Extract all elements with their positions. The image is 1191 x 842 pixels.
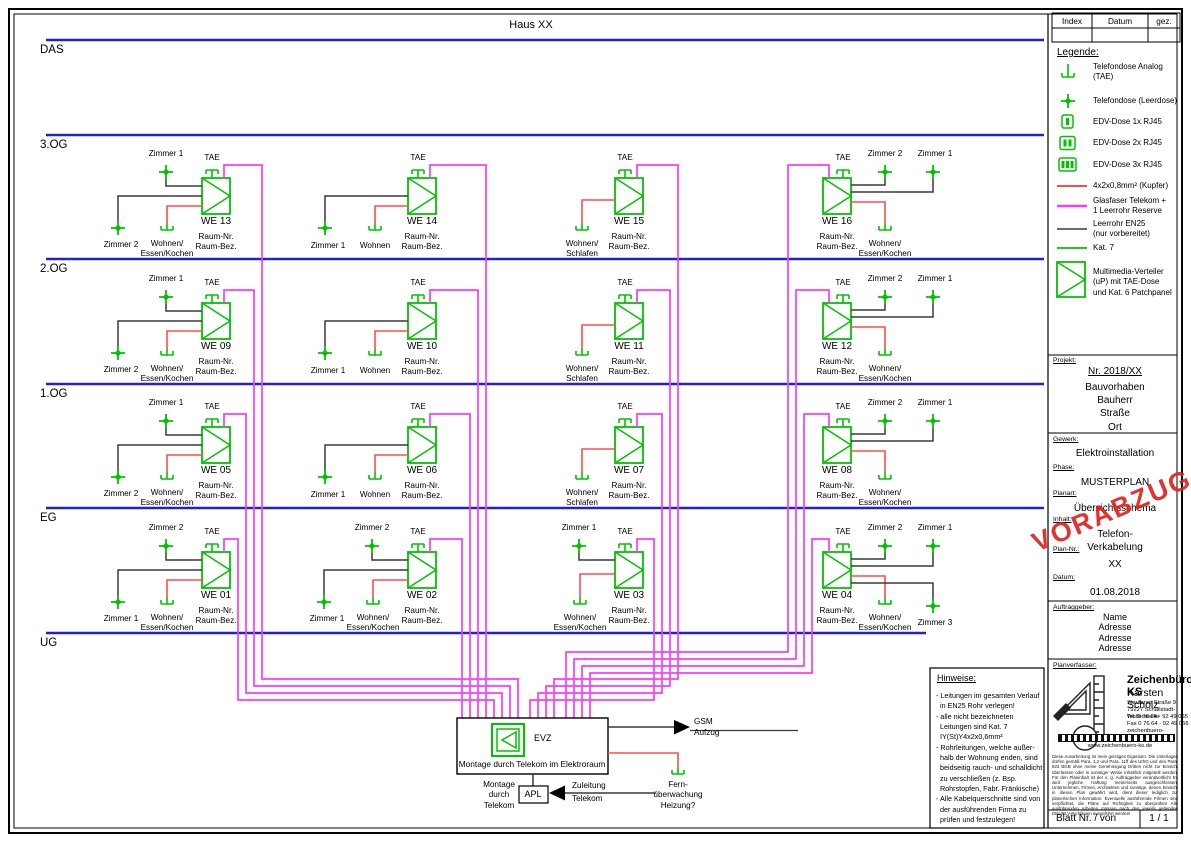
- tae-fork-icon: [576, 472, 588, 479]
- multimedia-verteiler-icon: [823, 178, 851, 214]
- tae-fork-icon: [206, 419, 218, 427]
- copper-line: [375, 455, 408, 472]
- phase-label: Phase:: [1053, 464, 1074, 471]
- fiber-cable: [546, 290, 670, 718]
- conduit-line: [325, 445, 408, 470]
- raum-bez-label: Raum-Bez.: [402, 491, 443, 501]
- tae-fork-icon: [369, 348, 381, 355]
- leerdose-star-core: [882, 418, 889, 425]
- hinweise-line: halb der Wohnung enden, sind: [936, 753, 1042, 763]
- tae-fork-icon: [576, 223, 588, 230]
- tae-fork-icon: [412, 419, 424, 427]
- fiber-cable: [566, 165, 829, 718]
- projekt-lines: Bauvorhaben Bauherr Straße Ort: [1085, 381, 1145, 434]
- conduit-line: [118, 570, 202, 595]
- raum-bez-label: Raum-Bez.: [609, 491, 650, 501]
- gsm-label: GSM Aufzug: [694, 716, 720, 738]
- room-label: Wohnen/ Essen/Kochen: [859, 364, 912, 385]
- leerdose-star-core: [882, 169, 889, 176]
- room-label: Wohnen/ Essen/Kochen: [859, 239, 912, 260]
- unit-name: WE 15: [614, 216, 644, 229]
- raum-bez-label: Raum-Bez.: [196, 616, 237, 626]
- room-label: Zimmer 1: [311, 490, 346, 500]
- multimedia-verteiler-icon: [615, 552, 643, 588]
- hinweise-line: - Leitungen im gesamten Verlauf: [936, 691, 1042, 701]
- copper-line: [167, 206, 202, 223]
- room-label: Zimmer 1: [149, 149, 184, 159]
- tae-fork-icon: [837, 419, 849, 427]
- tae-label: TAE: [204, 278, 219, 288]
- tae-fork-icon: [619, 419, 631, 427]
- tae-label: TAE: [204, 527, 219, 537]
- leerdose-star-core: [115, 474, 122, 481]
- zuleitung-arrow-icon: [549, 786, 565, 801]
- tae-fork-icon: [206, 170, 218, 178]
- copper-line: [851, 202, 885, 223]
- zuleitung-label: Zuleitung Telekom: [572, 780, 606, 805]
- edv-dose-3x-pin: [1062, 161, 1065, 168]
- tae-label: TAE: [410, 402, 425, 412]
- copper-line: [375, 206, 408, 223]
- legend-item-label: EDV-Dose 2x RJ45: [1093, 138, 1162, 148]
- tae-fork-icon: [879, 472, 891, 479]
- leerdose-star-core: [163, 169, 170, 176]
- leerdose-star-core: [163, 418, 170, 425]
- multimedia-verteiler-icon: [615, 178, 643, 214]
- copper-line: [375, 331, 408, 348]
- unit-name: WE 05: [201, 465, 231, 478]
- room-label: Zimmer 1: [918, 274, 953, 284]
- floor-label-eg: EG: [40, 512, 57, 524]
- edv-dose-1x-pin: [1066, 118, 1069, 125]
- tae-fork-icon: [619, 295, 631, 303]
- legend-item-label: 4x2x0,8mm² (Kupfer): [1093, 181, 1168, 191]
- raum-bez-label: Raum-Bez.: [196, 242, 237, 252]
- multimedia-verteiler-triangle: [615, 178, 643, 214]
- hinweise-line: Leitungen sind Kat. 7: [936, 722, 1042, 732]
- multimedia-verteiler-icon: [202, 178, 230, 214]
- leerdose-star-core: [115, 350, 122, 357]
- raum-bez-label: Raum-Bez.: [817, 367, 858, 377]
- unit-name: WE 03: [614, 590, 644, 603]
- unit-name: WE 16: [822, 216, 852, 229]
- raum-bez-label: Raum-Bez.: [196, 367, 237, 377]
- raum-bez-label: Raum-Bez.: [196, 491, 237, 501]
- tae-fork-icon: [206, 295, 218, 303]
- legend-item-label: Glasfaser Telekom + 1 Leerrohr Reserve: [1093, 196, 1166, 217]
- floor-label-2og: 2.OG: [40, 263, 67, 275]
- multimedia-verteiler-icon: [615, 427, 643, 463]
- room-label: Zimmer 1: [149, 398, 184, 408]
- raum-bez-label: Raum-Bez.: [402, 616, 443, 626]
- legend-heading: Legende:: [1057, 47, 1099, 60]
- multimedia-verteiler-triangle: [615, 552, 643, 588]
- tae-fork-icon: [412, 170, 424, 178]
- conduit-line: [118, 445, 202, 470]
- hinweise-line: Rohrstopfen, Fabr. Fränkische): [936, 784, 1042, 794]
- leerdose-star-core: [930, 169, 937, 176]
- room-label: Zimmer 2: [355, 523, 390, 533]
- apl-label: APL: [524, 789, 541, 800]
- tae-fork-icon: [879, 223, 891, 230]
- leerdose-star-core: [115, 225, 122, 232]
- disclaimer-text: Diese Ausarbeitung ist mein geistiges Ei…: [1052, 754, 1178, 816]
- raum-nr-label: Raum-Nr.: [404, 357, 439, 367]
- index-table-header-index: Index: [1062, 17, 1082, 27]
- legend-item-label: Telefondose (Leerdose): [1093, 96, 1177, 106]
- tae-fork-icon: [367, 597, 379, 604]
- room-label: Wohnen/ Essen/Kochen: [141, 239, 194, 260]
- projekt-nr: Nr. 2018/XX: [1088, 365, 1142, 378]
- raum-nr-label: Raum-Nr.: [404, 232, 439, 242]
- conduit-line: [166, 553, 202, 560]
- index-table-header-datum: Datum: [1108, 17, 1132, 27]
- multimedia-verteiler-triangle: [823, 178, 851, 214]
- firma-strasse: Staufener Straße 9: [1127, 700, 1176, 707]
- edv-dose-3x-pin: [1071, 161, 1074, 168]
- unit-name: WE 09: [201, 341, 231, 354]
- page-title: Haus XX: [509, 19, 552, 31]
- room-label: Zimmer 1: [918, 149, 953, 159]
- copper-line: [167, 580, 202, 597]
- conduit-line: [166, 179, 202, 186]
- conduit-line: [851, 179, 885, 185]
- tae-label: TAE: [410, 153, 425, 163]
- multimedia-verteiler-icon: [823, 427, 851, 463]
- apl-montage-label: Montage durch Telekom: [483, 780, 515, 811]
- room-label: Zimmer 2: [868, 274, 903, 284]
- room-label: Zimmer 2: [868, 398, 903, 408]
- raum-bez-label: Raum-Bez.: [817, 491, 858, 501]
- tae-fork-icon: [619, 170, 631, 178]
- blatt-value: 1 / 1: [1149, 813, 1168, 826]
- copper-line: [580, 574, 615, 597]
- tae-fork-icon: [672, 767, 684, 774]
- evz-note: Montage durch Telekom im Elektroraum: [459, 759, 606, 769]
- tae-label: TAE: [617, 278, 632, 288]
- hinweise-line: - Alle Kabelquerschnitte sind von: [936, 794, 1042, 804]
- leerdose-star-core: [322, 350, 329, 357]
- leerdose-star-core: [576, 543, 583, 550]
- tae-fork-icon: [161, 348, 173, 355]
- conduit-line: [579, 553, 615, 560]
- room-label: Zimmer 1: [918, 523, 953, 533]
- conduit-line: [118, 321, 202, 346]
- floor-label-1og: 1.OG: [40, 388, 67, 400]
- room-label: Zimmer 1: [104, 614, 139, 624]
- room-label: Wohnen/ Essen/Kochen: [554, 613, 607, 634]
- tae-fork-icon: [574, 597, 586, 604]
- raum-bez-label: Raum-Bez.: [609, 616, 650, 626]
- multimedia-verteiler-icon: [615, 303, 643, 339]
- multimedia-verteiler-triangle: [408, 303, 436, 339]
- tae-fork-icon: [369, 223, 381, 230]
- multimedia-verteiler-icon: [202, 303, 230, 339]
- legend-item-label: Kat. 7: [1093, 243, 1114, 253]
- tae-fork-icon: [837, 295, 849, 303]
- unit-name: WE 07: [614, 465, 644, 478]
- hinweise-line: zu verschließen (z. Bsp.: [936, 774, 1042, 784]
- leerdose-star-core: [930, 603, 937, 610]
- raum-bez-label: Raum-Bez.: [402, 367, 443, 377]
- edv-dose-3x-pin: [1066, 161, 1069, 168]
- multimedia-verteiler-icon: [1057, 262, 1085, 297]
- raum-nr-label: Raum-Nr.: [819, 481, 854, 491]
- multimedia-verteiler-icon: [823, 552, 851, 588]
- raum-bez-label: Raum-Bez.: [609, 242, 650, 252]
- room-label: Zimmer 1: [918, 398, 953, 408]
- raum-bez-label: Raum-Bez.: [817, 242, 858, 252]
- floor-label-3og: 3.OG: [40, 139, 67, 151]
- leerdose-star-core: [322, 225, 329, 232]
- gewerk-label: Gewerk:: [1053, 436, 1078, 443]
- conduit-line: [324, 570, 408, 595]
- heizung-label: Fern- überwachung Heizung?: [653, 780, 702, 811]
- tae-label: TAE: [617, 527, 632, 537]
- blatt-label: Blatt Nr. / von: [1056, 813, 1116, 826]
- edv-dose-2x-pin: [1064, 140, 1067, 147]
- gsm-arrow-icon: [674, 720, 690, 735]
- room-label: Wohnen/ Schlafen: [566, 488, 599, 509]
- raum-nr-label: Raum-Nr.: [404, 481, 439, 491]
- multimedia-verteiler-icon: [408, 552, 436, 588]
- tae-label: TAE: [204, 153, 219, 163]
- copper-line: [373, 580, 408, 597]
- tae-fork-icon: [879, 348, 891, 355]
- tae-fork-icon: [412, 295, 424, 303]
- multimedia-verteiler-icon: [202, 427, 230, 463]
- floor-label-ug: UG: [40, 637, 57, 649]
- room-label: Zimmer 3: [918, 618, 953, 628]
- raum-bez-label: Raum-Bez.: [402, 242, 443, 252]
- firma-web: www.zeichenbuero-ks.de: [1088, 743, 1152, 750]
- conduit-line: [325, 321, 408, 346]
- conduit-line: [851, 428, 885, 434]
- unit-name: WE 01: [201, 590, 231, 603]
- raum-nr-label: Raum-Nr.: [198, 357, 233, 367]
- raum-nr-label: Raum-Nr.: [819, 232, 854, 242]
- raum-nr-label: Raum-Nr.: [819, 357, 854, 367]
- room-label: Wohnen/ Essen/Kochen: [141, 364, 194, 385]
- room-label: Wohnen/ Essen/Kochen: [859, 613, 912, 634]
- leerdose-star-core: [322, 474, 329, 481]
- tae-label: TAE: [835, 527, 850, 537]
- conduit-line: [372, 553, 408, 560]
- conduit-line: [325, 196, 408, 221]
- tae-icon: [1062, 64, 1074, 77]
- raum-nr-label: Raum-Nr.: [198, 606, 233, 616]
- legend-item-label: Leerrohr EN25 (nur vorbereitet): [1093, 219, 1150, 240]
- raum-nr-label: Raum-Nr.: [611, 357, 646, 367]
- multimedia-verteiler-triangle: [615, 303, 643, 339]
- room-label: Zimmer 2: [104, 240, 139, 250]
- multimedia-verteiler-triangle: [202, 178, 230, 214]
- multimedia-verteiler-triangle: [615, 427, 643, 463]
- room-label: Zimmer 2: [149, 523, 184, 533]
- edv-dose-2x-pin: [1069, 140, 1072, 147]
- multimedia-verteiler-triangle: [1057, 262, 1085, 297]
- room-label: Wohnen: [360, 366, 390, 376]
- multimedia-verteiler-triangle: [823, 552, 851, 588]
- tae-label: TAE: [410, 527, 425, 537]
- room-label: Zimmer 2: [104, 489, 139, 499]
- raum-nr-label: Raum-Nr.: [611, 606, 646, 616]
- room-label: Wohnen/ Schlafen: [566, 364, 599, 385]
- tae-label: TAE: [204, 402, 219, 412]
- multimedia-verteiler-icon: [202, 552, 230, 588]
- fiber-cable: [224, 290, 510, 718]
- leerdose-star-core: [1065, 98, 1072, 105]
- conduit-line: [166, 304, 202, 311]
- room-label: Zimmer 1: [310, 614, 345, 624]
- hinweise-list: - Leitungen im gesamten Verlauf in EN25 …: [936, 691, 1042, 825]
- tae-label: TAE: [835, 402, 850, 412]
- multimedia-verteiler-triangle: [202, 552, 230, 588]
- datum-value: 01.08.2018: [1090, 586, 1140, 599]
- multimedia-verteiler-icon: [408, 303, 436, 339]
- tae-fork-icon: [837, 170, 849, 178]
- leerdose-star-core: [321, 599, 328, 606]
- raum-nr-label: Raum-Nr.: [611, 481, 646, 491]
- tae-fork-icon: [837, 544, 849, 552]
- fiber-cable: [590, 539, 829, 718]
- fiber-cable: [224, 414, 502, 718]
- copper-line: [167, 455, 202, 472]
- room-label: Zimmer 1: [311, 366, 346, 376]
- projekt-label: Projekt:: [1053, 357, 1076, 364]
- copper-line: [582, 325, 615, 348]
- room-label: Zimmer 2: [104, 365, 139, 375]
- conduit-line: [118, 196, 202, 221]
- leerdose-star-core: [882, 543, 889, 550]
- tae-fork-icon: [576, 348, 588, 355]
- fiber-cable: [574, 290, 829, 718]
- room-label: Zimmer 1: [311, 241, 346, 251]
- multimedia-verteiler-triangle: [408, 552, 436, 588]
- multimedia-verteiler-triangle: [823, 427, 851, 463]
- leerdose-star-core: [930, 294, 937, 301]
- leerdose-star-core: [882, 294, 889, 301]
- raum-bez-label: Raum-Bez.: [817, 616, 858, 626]
- copper-line: [582, 449, 615, 472]
- raum-nr-label: Raum-Nr.: [819, 606, 854, 616]
- firma-tel: Tel. 0 76 64 - 92 49 065: [1127, 714, 1188, 721]
- raum-nr-label: Raum-Nr.: [611, 232, 646, 242]
- room-label: Zimmer 2: [868, 149, 903, 159]
- multimedia-verteiler-icon: [408, 427, 436, 463]
- unit-name: WE 13: [201, 216, 231, 229]
- leerdose-star-core: [115, 599, 122, 606]
- room-label: Wohnen/ Essen/Kochen: [347, 613, 400, 634]
- tae-fork-icon: [206, 544, 218, 552]
- leerdose-star-core: [369, 543, 376, 550]
- raum-bez-label: Raum-Bez.: [609, 367, 650, 377]
- auftraggeber-label: Auftraggeber:: [1053, 604, 1094, 611]
- floor-label-das: DAS: [40, 44, 64, 56]
- hinweise-heading: Hinweise:: [937, 673, 976, 684]
- datum-label: Datum:: [1053, 574, 1075, 581]
- auftraggeber-value: Name Adresse Adresse Adresse: [1098, 612, 1131, 653]
- room-label: Zimmer 2: [868, 523, 903, 533]
- multimedia-verteiler-triangle: [408, 178, 436, 214]
- room-label: Wohnen/ Essen/Kochen: [141, 488, 194, 509]
- tae-label: TAE: [835, 278, 850, 288]
- fiber-cable: [430, 539, 462, 718]
- unit-name: WE 14: [407, 216, 437, 229]
- multimedia-verteiler-triangle: [202, 427, 230, 463]
- tae-fork-icon: [161, 472, 173, 479]
- tae-fork-icon: [619, 544, 631, 552]
- tae-label: TAE: [410, 278, 425, 288]
- unit-name: WE 02: [407, 590, 437, 603]
- heizung-line: [608, 753, 678, 767]
- evz-label: EVZ: [534, 733, 552, 744]
- legend-item-label: Telefondose Analog (TAE): [1093, 62, 1163, 83]
- tae-fork-icon: [161, 597, 173, 604]
- conduit-line: [166, 428, 202, 435]
- leerdose-star-core: [930, 418, 937, 425]
- room-label: Zimmer 1: [149, 274, 184, 284]
- unit-name: WE 04: [822, 590, 852, 603]
- legend-item-label: EDV-Dose 3x RJ45: [1093, 160, 1162, 170]
- tae-label: TAE: [617, 402, 632, 412]
- raum-nr-label: Raum-Nr.: [198, 481, 233, 491]
- copper-line: [851, 327, 885, 348]
- tae-label: TAE: [617, 153, 632, 163]
- multimedia-verteiler-icon: [823, 303, 851, 339]
- unit-name: WE 12: [822, 341, 852, 354]
- edv-dose-2x-icon: [1060, 137, 1075, 150]
- tae-label: TAE: [835, 153, 850, 163]
- raum-nr-label: Raum-Nr.: [404, 606, 439, 616]
- leerdose-star-core: [930, 543, 937, 550]
- ruler-bar-icon: [1058, 734, 1175, 742]
- firma-fax: Fax 0 76 64 - 92 49 066: [1127, 721, 1189, 728]
- hinweise-line: - alle nicht bezeichneten: [936, 712, 1042, 722]
- hinweise-line: beidseitig rauch- und schalldicht: [936, 763, 1042, 773]
- hinweise-line: der ausführenden Firma zu: [936, 805, 1042, 815]
- copper-line: [167, 331, 202, 348]
- multimedia-verteiler-icon: [408, 178, 436, 214]
- leerdose-star-core: [163, 294, 170, 301]
- unit-name: WE 06: [407, 465, 437, 478]
- conduit-line: [851, 304, 885, 310]
- room-label: Wohnen/ Essen/Kochen: [859, 488, 912, 509]
- room-label: Wohnen: [360, 241, 390, 251]
- legend-item-label: Multimedia-Verteiler (uP) mit TAE-Dose u…: [1093, 267, 1172, 298]
- tae-fork-icon: [369, 472, 381, 479]
- hinweise-line: prüfen und festzulegen!: [936, 815, 1042, 825]
- room-label: Wohnen/ Schlafen: [566, 239, 599, 260]
- planart-label: Planart:: [1053, 490, 1076, 497]
- copper-line: [851, 576, 885, 597]
- gewerk-value: Elektroinstallation: [1076, 447, 1154, 460]
- room-label: Zimmer 1: [562, 523, 597, 533]
- copper-line: [582, 200, 615, 223]
- planverfasser-label: Planverfasser:: [1053, 662, 1096, 669]
- room-label: Wohnen: [360, 490, 390, 500]
- tae-fork-icon: [879, 597, 891, 604]
- tae-fork-icon: [412, 544, 424, 552]
- multimedia-verteiler-triangle: [202, 303, 230, 339]
- multimedia-verteiler-triangle: [823, 303, 851, 339]
- legend-item-label: EDV-Dose 1x RJ45: [1093, 117, 1162, 127]
- conduit-line: [851, 553, 885, 559]
- hinweise-line: IY(St)Y4x2x0,6mm²: [936, 732, 1042, 742]
- conduit-line: [851, 583, 933, 599]
- unit-name: WE 11: [614, 341, 643, 354]
- unit-name: WE 08: [822, 465, 852, 478]
